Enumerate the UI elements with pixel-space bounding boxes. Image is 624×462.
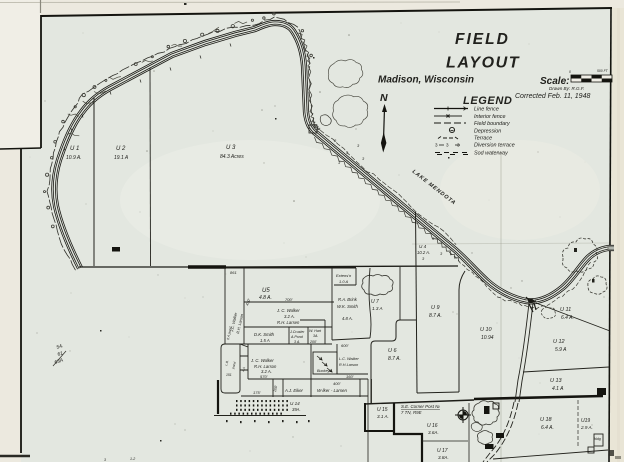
svg-text:160': 160': [346, 374, 354, 379]
svg-text:R.A. Brink: R.A. Brink: [338, 297, 358, 302]
svg-text:U 10: U 10: [480, 327, 493, 333]
svg-text:3.8A.: 3.8A.: [438, 455, 449, 460]
svg-text:D.K. Smith: D.K. Smith: [254, 332, 275, 337]
svg-text:J. C. Walker: J. C. Walker: [250, 358, 274, 363]
svg-text:1.3 A: 1.3 A: [372, 306, 383, 311]
svg-text:W. Hart: W. Hart: [309, 329, 322, 333]
svg-text:U 9: U 9: [431, 305, 440, 311]
svg-text:U 6: U 6: [388, 348, 398, 354]
svg-text:10.2 A.: 10.2 A.: [417, 250, 430, 255]
svg-text:3: 3: [104, 458, 106, 462]
svg-text:500 FT: 500 FT: [597, 69, 609, 73]
svg-text:bldg: bldg: [594, 437, 601, 441]
svg-text:2.9 A.: 2.9 A.: [580, 425, 593, 430]
svg-text:FIELD: FIELD: [455, 31, 510, 48]
svg-text:3.2 A.: 3.2 A.: [284, 314, 295, 319]
svg-text:J.Crusler: J.Crusler: [289, 330, 305, 334]
svg-text:175': 175': [253, 390, 261, 395]
svg-text:R.H.Larson: R.H.Larson: [339, 363, 358, 367]
svg-text:8.7 A.: 8.7 A.: [429, 313, 442, 319]
svg-text:19.1 A: 19.1 A: [114, 155, 129, 161]
svg-text:U 3: U 3: [226, 145, 236, 151]
svg-text:0: 0: [569, 70, 571, 74]
svg-text:Terrace: Terrace: [474, 136, 492, 142]
svg-text:U 18: U 18: [540, 417, 553, 423]
svg-text:151: 151: [226, 373, 232, 377]
svg-text:6.4 A.: 6.4 A.: [541, 425, 554, 431]
svg-text:LAYOUT: LAYOUT: [446, 55, 520, 72]
svg-text:LEGEND: LEGEND: [463, 95, 512, 107]
svg-text:U 13: U 13: [550, 378, 563, 384]
svg-text:6.4 A.: 6.4 A.: [561, 315, 574, 321]
svg-text:Corrected Feb. 11, 1948: Corrected Feb. 11, 1948: [515, 93, 590, 100]
svg-text:J. C. Walker: J. C. Walker: [276, 308, 300, 313]
svg-text:U19: U19: [581, 418, 590, 424]
svg-text:N: N: [380, 92, 388, 104]
svg-text:1-2: 1-2: [130, 457, 135, 461]
svg-text:U 15: U 15: [377, 407, 388, 413]
svg-text:3A.: 3A.: [313, 334, 318, 338]
svg-text:4.1 A: 4.1 A: [552, 386, 564, 392]
svg-text:5.9 A: 5.9 A: [555, 347, 567, 353]
svg-text:U 11: U 11: [560, 307, 571, 313]
svg-text:4.8 A.: 4.8 A.: [342, 316, 353, 321]
svg-text:W-lker - Larsen: W-lker - Larsen: [317, 388, 347, 393]
svg-text:39A.: 39A.: [292, 407, 301, 412]
svg-text:U 2: U 2: [116, 146, 126, 152]
svg-text:400': 400': [333, 381, 341, 386]
svg-text:Madison, Wisconsin: Madison, Wisconsin: [378, 75, 474, 86]
svg-text:10.94: 10.94: [481, 335, 494, 341]
svg-text:A.J. Eiker: A.J. Eiker: [284, 388, 304, 393]
svg-text:Sod waterway: Sod waterway: [474, 151, 508, 157]
svg-text:A.Pond: A.Pond: [290, 335, 304, 339]
svg-text:Line fence: Line fence: [474, 107, 499, 113]
svg-text:3: 3: [446, 143, 449, 148]
svg-text:W.K. Smith: W.K. Smith: [337, 304, 358, 309]
svg-text:U 14: U 14: [290, 401, 300, 406]
svg-text:3.1 A.: 3.1 A.: [377, 414, 389, 419]
svg-text:570': 570': [260, 374, 268, 379]
svg-text:7 TN, R9E: 7 TN, R9E: [401, 410, 422, 415]
svg-text:Diversion terrace: Diversion terrace: [474, 143, 515, 149]
svg-text:U 4: U 4: [419, 244, 427, 249]
svg-text:10.9 A.: 10.9 A.: [66, 155, 82, 161]
svg-text:8.7 A.: 8.7 A.: [388, 356, 401, 362]
svg-text:U 1: U 1: [70, 146, 79, 152]
svg-text:L.C. Walker: L.C. Walker: [339, 357, 359, 361]
svg-text:U 16: U 16: [427, 423, 438, 429]
svg-text:3.6A.: 3.6A.: [428, 430, 439, 435]
svg-text:U 12: U 12: [553, 339, 565, 345]
svg-text:861: 861: [230, 270, 237, 275]
svg-text:U5: U5: [262, 288, 270, 294]
svg-text:Field boundary: Field boundary: [474, 121, 510, 127]
svg-text:84.3 Acres: 84.3 Acres: [220, 154, 244, 160]
svg-text:Interior fence: Interior fence: [474, 114, 505, 120]
svg-text:S.E. Corner Post №: S.E. Corner Post №: [401, 404, 440, 409]
svg-text:1.0 A: 1.0 A: [339, 279, 349, 284]
svg-text:3 A.: 3 A.: [294, 340, 300, 344]
svg-text:Drawn By: R.G.F.: Drawn By: R.G.F.: [549, 86, 585, 91]
svg-text:Depression: Depression: [474, 129, 501, 135]
svg-text:Extens'n: Extens'n: [336, 273, 352, 278]
svg-text:600': 600': [341, 343, 349, 348]
svg-text:200': 200': [309, 340, 317, 344]
svg-text:1.5 A: 1.5 A: [260, 338, 270, 343]
svg-text:R.H. Larsen: R.H. Larsen: [277, 320, 300, 325]
svg-text:4.8 A.: 4.8 A.: [259, 295, 272, 301]
svg-text:U 17: U 17: [437, 448, 448, 454]
svg-text:U 7: U 7: [371, 299, 379, 305]
svg-text:3: 3: [435, 143, 438, 148]
svg-text:700': 700': [285, 297, 293, 302]
